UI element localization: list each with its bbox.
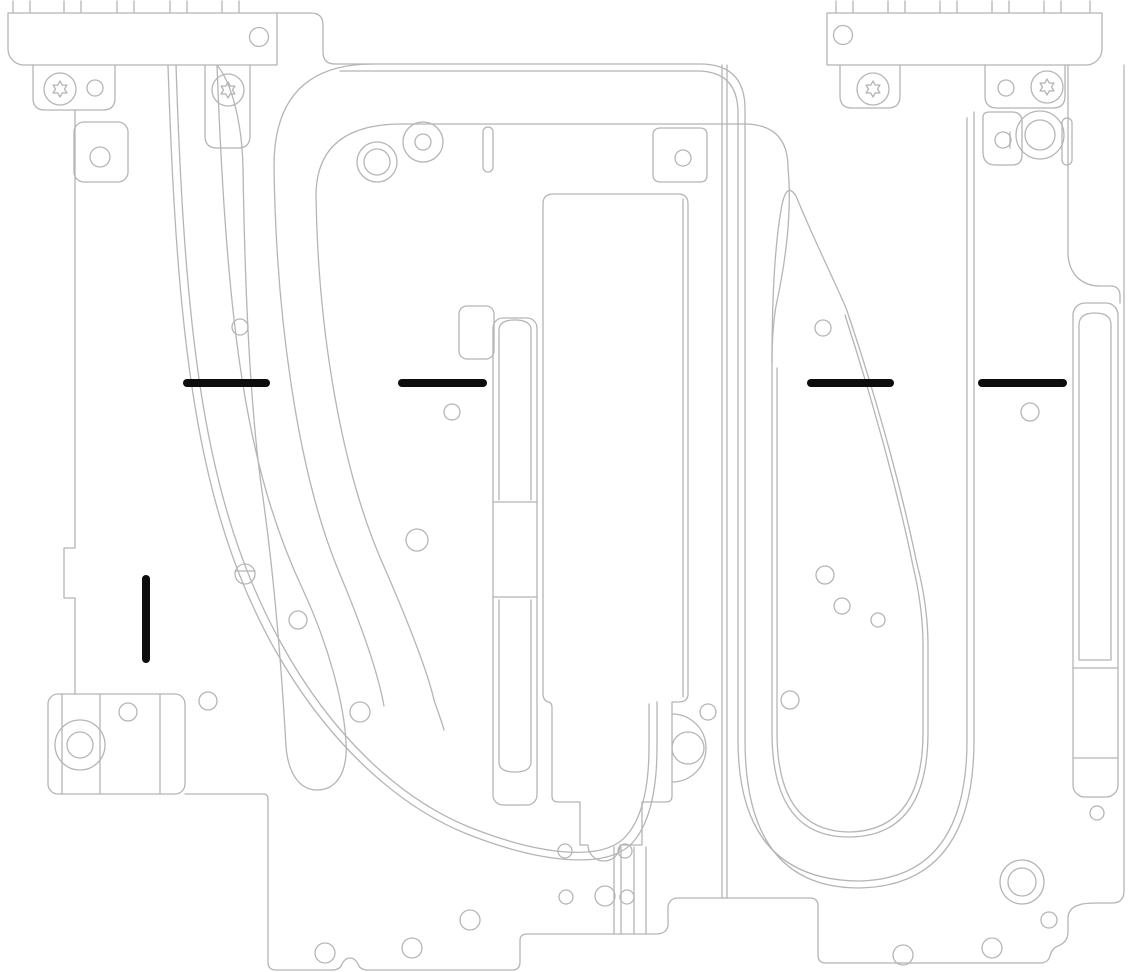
ring-inner (364, 149, 390, 175)
hole (1041, 912, 1057, 928)
torx-screws (44, 71, 1063, 106)
assembly-outlines (8, 1, 1124, 970)
ring-outer (403, 122, 443, 162)
hole (595, 886, 615, 906)
left-edge-connector (8, 1, 335, 65)
left-loop-tube (168, 64, 657, 860)
hole (893, 945, 913, 965)
connector-teeth-left (13, 1, 239, 13)
hole (816, 566, 834, 584)
right-mounting-pads (840, 65, 1120, 303)
ring-outer (357, 142, 397, 182)
hole (119, 703, 137, 721)
hole (620, 890, 634, 904)
hole (834, 598, 850, 614)
hole (982, 938, 1002, 958)
hole (559, 890, 573, 904)
horizontal-alignment-mark (807, 379, 894, 387)
center-plate (543, 128, 707, 933)
hole (700, 704, 716, 720)
hole (406, 529, 428, 551)
ring-inner (1025, 120, 1055, 150)
ring-outer (1000, 860, 1044, 904)
torx-screw-icon (212, 74, 244, 106)
hole (350, 702, 370, 722)
horizontal-alignment-mark (978, 379, 1067, 387)
drill-holes (87, 26, 1104, 966)
hole (675, 150, 691, 166)
hole (995, 132, 1011, 148)
center-slot-rail (459, 127, 537, 805)
hole (672, 732, 704, 764)
hole (998, 80, 1014, 96)
hole (871, 613, 885, 627)
hole (250, 28, 269, 47)
torx-screw-icon (1031, 71, 1063, 103)
hole (315, 943, 335, 963)
ring-inner (67, 732, 93, 758)
bottom-profile (185, 65, 1124, 970)
cold-plate-line-drawing (0, 0, 1128, 972)
tube-bridge-and-right-loop (335, 64, 974, 888)
ring-outer (1016, 111, 1064, 159)
hole (460, 910, 480, 930)
alignment-ink-marks (142, 379, 1067, 663)
ring-inner (1008, 868, 1036, 896)
horizontal-alignment-mark (398, 379, 487, 387)
hole (444, 404, 460, 420)
torx-screw-icon (857, 73, 889, 105)
hole (289, 611, 307, 629)
horizontal-alignment-mark (183, 379, 270, 387)
vertical-alignment-mark (142, 575, 150, 663)
ring-fittings (55, 111, 1064, 904)
torx-screw-icon (44, 73, 76, 105)
ring-inner (415, 134, 431, 150)
right-edge-connector (827, 1, 1102, 65)
hole (90, 147, 110, 167)
hole (402, 938, 422, 958)
hole (815, 320, 831, 336)
hole (834, 26, 853, 45)
hole (1090, 806, 1104, 820)
connector-teeth-right (836, 1, 1090, 13)
hole (199, 692, 217, 710)
left-mounting-pads (33, 65, 250, 794)
hole (781, 691, 799, 709)
illustration-stage (0, 0, 1128, 972)
hole (1021, 403, 1039, 421)
hole (618, 844, 632, 858)
hole (87, 80, 103, 96)
